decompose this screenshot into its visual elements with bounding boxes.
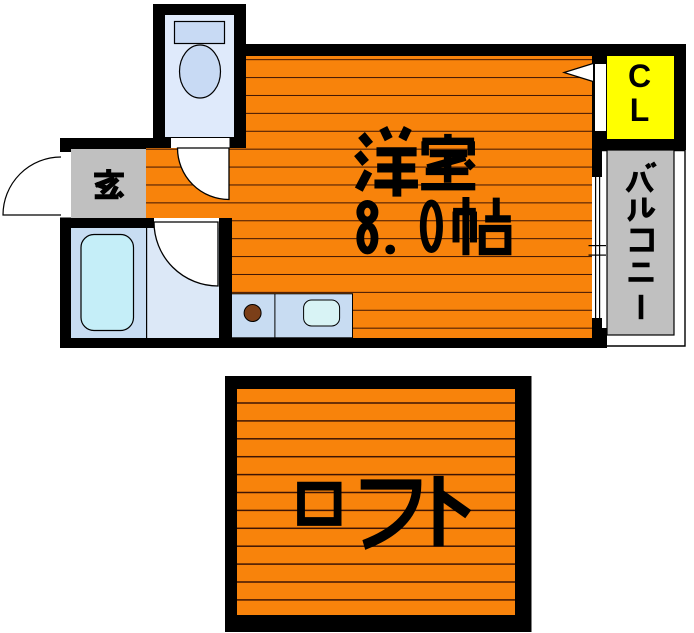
svg-text:C: C [628, 58, 651, 94]
svg-text:L: L [630, 92, 650, 128]
